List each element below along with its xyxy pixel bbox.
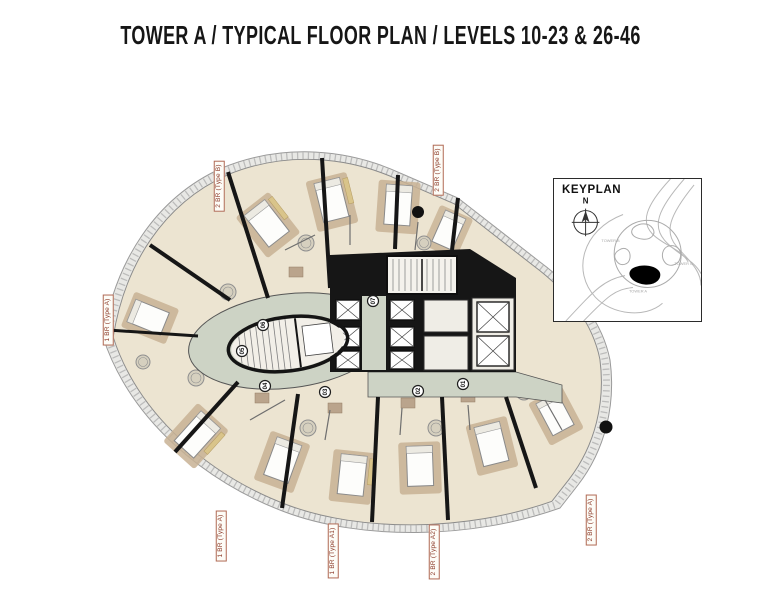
page: TOWER A / TYPICAL FLOOR PLAN / LEVELS 10… [0,0,762,600]
unit-type-label-top-right: 2 BR (Type B) [433,144,444,195]
unit-type-label-left: 1 BR (Type A) [103,294,114,345]
unit-marker-06: 06 [258,320,269,331]
svg-text:04: 04 [263,382,269,389]
unit-type-label-bottom-left: 1 BR (Type A) [216,510,227,561]
north-label: N [583,197,589,206]
unit-type-label-bottom-middle: 1 BR (Type A1) [328,524,339,579]
private-lifts [472,298,514,370]
unit-type-label-top-left: 2 BR (Type B) [214,160,225,211]
keyplan-label-tower-a: TOWER A [629,288,647,293]
unit-marker-02: 02 [413,386,424,397]
building-core [330,249,516,372]
keyplan-label-tower-b: TOWER B [601,238,620,243]
svg-text:03: 03 [323,388,329,395]
keyplan-box: TOWER B TOWER C TOWER A N KEYPLAN [553,178,702,322]
terrace-spa-north [412,206,424,218]
keyplan-tower-a-highlight [629,266,660,285]
lift-lobby [362,296,386,370]
terrace-spa-east [600,421,613,434]
unit-marker-01: 01 [458,379,469,390]
unit-marker-04: 04 [260,381,271,392]
keyplan-drawing: TOWER B TOWER C TOWER A N [554,179,701,321]
keyplan-label-tower-c: TOWER C [674,261,693,266]
core-stairs [387,256,457,294]
svg-text:05: 05 [240,347,246,354]
svg-text:01: 01 [461,380,467,387]
svg-text:06: 06 [261,321,267,328]
svg-text:07: 07 [371,297,377,304]
keyplan-heading: KEYPLAN [562,184,621,196]
unit-marker-07: 07 [368,296,379,307]
unit-marker-05: 05 [237,346,248,357]
unit-type-label-right: 2 BR (Type A) [586,494,597,545]
unit-type-label-bottom-right: 2 BR (Type A2) [429,525,440,580]
north-compass-icon [572,209,600,237]
svg-text:02: 02 [416,387,422,394]
unit-marker-03: 03 [320,387,331,398]
